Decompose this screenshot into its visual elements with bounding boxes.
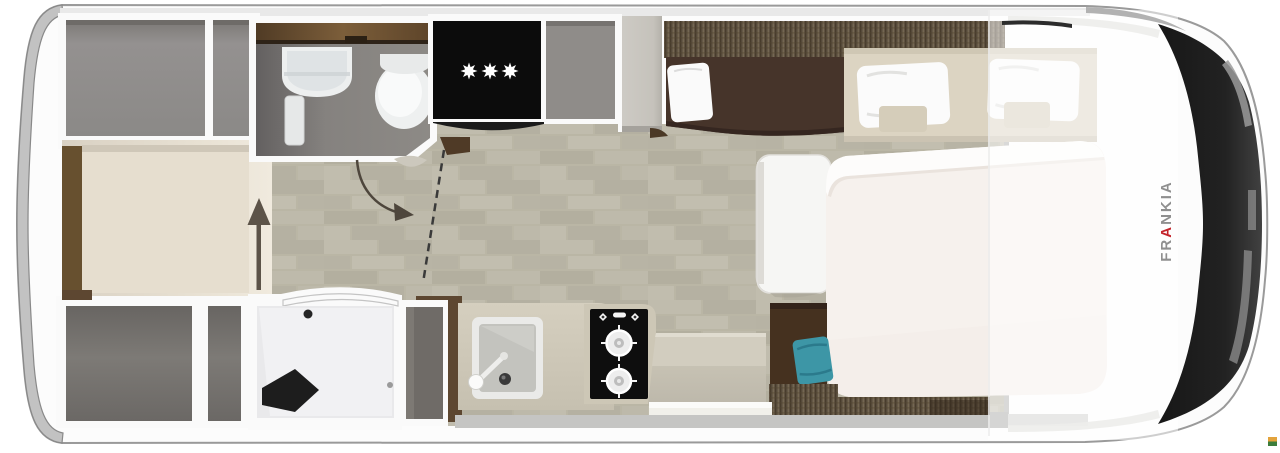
svg-text:FRANKIA: FRANKIA bbox=[1158, 180, 1175, 262]
